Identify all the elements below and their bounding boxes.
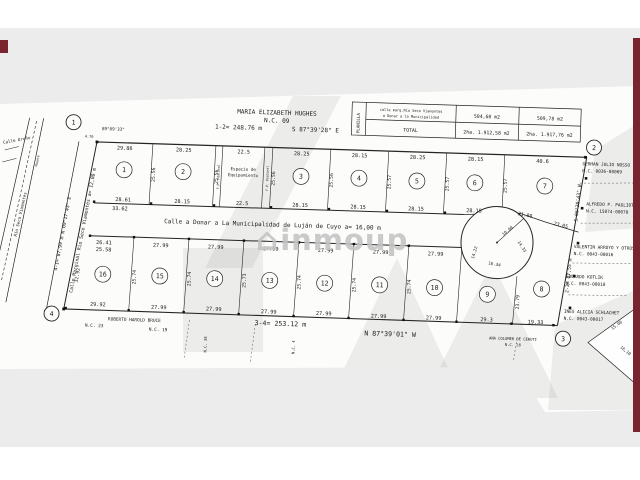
dim: 29.92	[90, 302, 106, 308]
dim: 28.25	[176, 147, 192, 153]
neighbor-nc: N.C. 4	[290, 340, 295, 355]
bridge-label: Puente	[34, 155, 40, 167]
dim: 23.05	[553, 221, 569, 230]
dim: 40.6	[536, 159, 549, 165]
dim: 28.25	[294, 151, 310, 157]
dim: 28.15	[174, 199, 190, 205]
dim: 27.99	[208, 244, 224, 250]
neighbor-name: ALFREDO P. PAGLIOTO	[586, 201, 637, 209]
dim: 25.74	[132, 270, 138, 285]
dim: 16,10	[619, 345, 632, 357]
inmoup-watermark-text: inmoup	[280, 226, 408, 255]
lot-number: 2	[181, 168, 185, 176]
neighbor-name: ANA COLOMER DE CERUTI	[489, 335, 537, 342]
corner-angle: 89°09'33"	[102, 126, 125, 132]
dim: 28.25	[410, 155, 426, 161]
dim: 27.99	[261, 309, 277, 315]
left-street-river: Calle Marginal Río Seco Viamontes a= 12,…	[0, 134, 99, 294]
dim: 28.15	[292, 203, 308, 209]
lot-number: 15	[156, 272, 164, 280]
right-neighbors: GERMAN JULIO NOSSO N.C. 0036-00069 ALFRE…	[564, 161, 639, 324]
dim: 27.99	[428, 251, 444, 257]
scanned-survey-plan: MARIA ELIZABETH HUGHES N.C. 09 1-2= 248.…	[0, 0, 640, 480]
bottom-bearing: N 87°39'01" W	[364, 329, 416, 339]
dim: 25.57	[503, 178, 509, 193]
title-block: MARIA ELIZABETH HUGHES N.C. 09 1-2= 248.…	[215, 108, 340, 135]
neighbor-nc: N.C. 28	[505, 342, 522, 348]
dim: 4.70	[85, 135, 94, 139]
lot-number: 1	[122, 166, 126, 174]
strip-label: F.P. Peatonal	[265, 166, 270, 191]
table-side-label: PLANILLA	[355, 113, 361, 134]
vertex-4: 4	[49, 310, 53, 318]
strip-label: F.P. Peatonal	[216, 164, 221, 189]
dim: 25.56	[329, 173, 335, 188]
left-red-marker	[0, 40, 8, 53]
lot-number: 3	[299, 173, 303, 181]
dim: 22.5	[236, 201, 249, 207]
segment-1-2: 1-2= 248.76 m	[215, 124, 263, 132]
dim: 15.00	[610, 319, 624, 331]
lot-number: 8	[539, 285, 543, 293]
neighbor-name: ROBERTO HAROLD BRUCE	[108, 316, 161, 324]
dim: 27.99	[426, 315, 442, 321]
dim: 28.15	[468, 157, 484, 163]
dim: 25.74	[351, 278, 357, 293]
dim: 25.57	[387, 175, 393, 190]
summary-table: PLANILLA calle marg.Río Seco Viamontes a…	[355, 107, 573, 140]
neighbor-name: INES ALICIA SCHLACHET	[564, 309, 620, 317]
neighbor-name: EDUARDO KOTLIK	[566, 274, 604, 281]
lot-number: 11	[376, 281, 384, 289]
lot-number: 14	[211, 275, 219, 283]
vertex-1: 1	[71, 119, 75, 127]
dim: 25.73	[241, 273, 247, 288]
neighbor-nc: N.C. 15074-00070	[586, 208, 629, 215]
inmoup-watermark: ⌂ inmoup	[256, 225, 408, 256]
table-cell: 2ha. 1.912,58 m2	[463, 129, 509, 136]
neighbor-nc: N.C. 0043-00016	[574, 251, 614, 258]
dim: 29.3	[480, 317, 493, 323]
owner-nc: N.C. 09	[264, 117, 290, 125]
neighbor-nc: N.C. 0043-00017	[564, 316, 604, 323]
dim: 25.56	[271, 171, 277, 186]
lot-number: 10	[430, 284, 438, 292]
espacio-label: Equipamiento	[228, 172, 259, 178]
lot-number: 6	[473, 179, 477, 187]
neighbor-nc: N.C. 38	[202, 336, 208, 353]
dim: 28.15	[466, 208, 482, 214]
dim: 19.33	[528, 320, 544, 326]
street-marginal-segment: 4-1= 87,99 m N 09°17'43" E	[53, 196, 73, 271]
lot-number: 7	[543, 182, 547, 190]
inmoup-logo-icon: ⌂	[256, 225, 279, 256]
neighbor-nc: N.C. 23	[85, 323, 104, 330]
dim: 28.15	[408, 206, 424, 212]
table-row1-label: a Donar a la Municipalidad	[383, 114, 439, 120]
table-cell: 504,60 m2	[474, 114, 500, 121]
bottom-segment: 3-4= 253.12 m	[254, 319, 306, 329]
street-orono-label: Calle Oroño	[3, 135, 32, 145]
dim: 28.61	[115, 197, 131, 203]
dim: 25.74	[406, 279, 412, 294]
dim: 25.74	[296, 275, 302, 290]
vertex-3: 3	[561, 335, 565, 343]
neighbor-nc: N.C. 19	[149, 327, 168, 334]
neighbor-name: VALENTIN ARROYO Y OTROS	[574, 244, 635, 252]
lot-number: 9	[485, 291, 489, 299]
espacio-label: Espacio de	[231, 166, 257, 172]
dim: 25.58	[96, 247, 112, 253]
dim: 25.74	[186, 272, 192, 287]
dim: 25.57	[445, 177, 451, 192]
table-row1-label: calle marg.Río Seco Viamontes	[380, 108, 443, 114]
bearing-1-2: S 87°39'28" E	[292, 126, 340, 134]
dim: 27.99	[151, 305, 167, 311]
dim: 33.62	[112, 206, 128, 212]
neighbor-nc: N.C. 0036-00069	[582, 168, 622, 175]
lot-number: 12	[321, 279, 329, 287]
neighbor-name: GERMAN JULIO NOSSO	[582, 161, 630, 169]
dim: 28.15	[352, 153, 368, 159]
dim: 22.5	[237, 149, 250, 155]
table-cell: 2ha. 1.917,76 m2	[526, 131, 572, 138]
dim: 27.99	[153, 243, 169, 249]
owner-name: MARIA ELIZABETH HUGHES	[237, 108, 317, 118]
dim: 27.99	[371, 314, 387, 320]
right-red-bar	[633, 38, 640, 432]
table-cell: 509,78 m2	[537, 116, 563, 123]
river-label: Río Seco Viamontes	[13, 191, 28, 237]
street-marginal-label: Calle Marginal Río Seco Viamontes a= 12,…	[67, 167, 98, 293]
lot-number: 4	[357, 174, 361, 182]
neighbor-nc: N.C. 0043-00018	[566, 281, 606, 288]
dim: 23.79	[515, 295, 521, 310]
table-total-label: TOTAL	[403, 128, 418, 134]
dim: 25.56	[151, 167, 157, 182]
vertex-2: 2	[592, 144, 596, 152]
dim: 26.41	[96, 240, 112, 246]
dim: 27.99	[206, 306, 222, 312]
dim: 28.15	[350, 204, 366, 210]
boundary-labels: 3-4= 253.12 m N 87°39'01" W S 06°30'43" …	[254, 174, 638, 357]
lot-number: 16	[99, 270, 107, 278]
dim: 27.99	[316, 311, 332, 317]
lot-number: 5	[415, 177, 419, 185]
dim: 29.86	[117, 146, 133, 152]
lot-number: 13	[266, 277, 274, 285]
right-bearing: S 06°30'43" W	[573, 184, 583, 222]
